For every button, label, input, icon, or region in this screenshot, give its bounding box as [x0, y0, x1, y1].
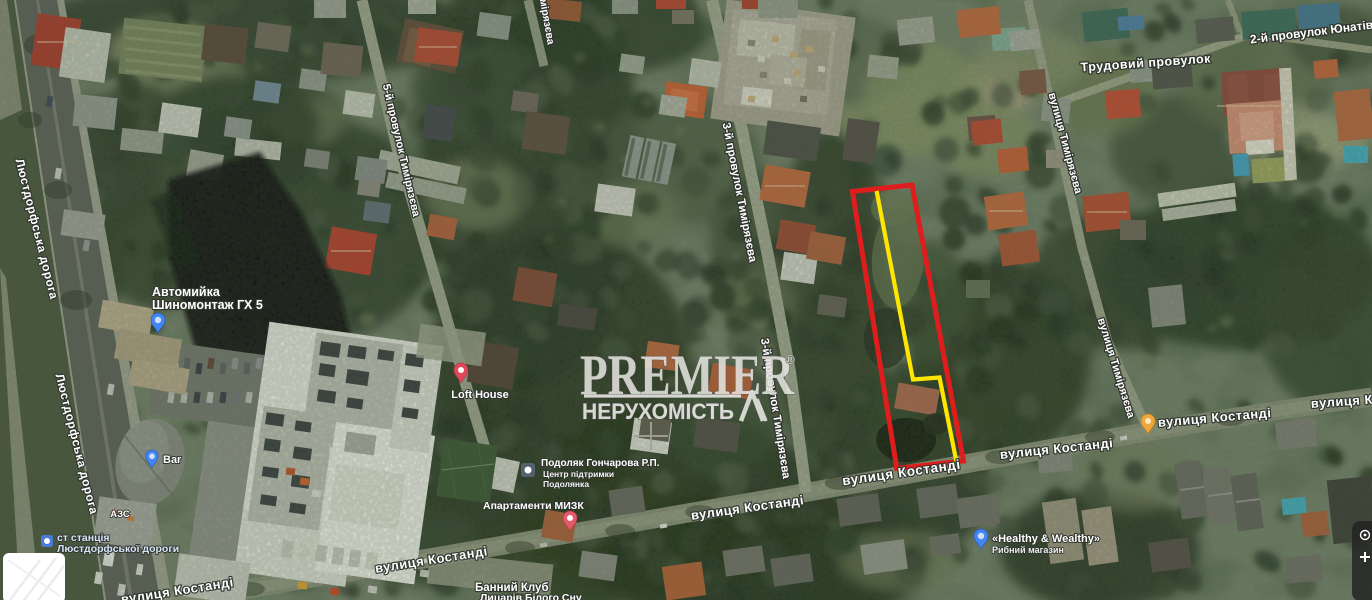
svg-text:Bar: Bar: [163, 454, 182, 466]
svg-text:Люстдорфської дороги: Люстдорфської дороги: [57, 543, 179, 555]
svg-text:Автомийка: Автомийка: [152, 285, 221, 299]
svg-text:Loft House: Loft House: [451, 389, 508, 401]
svg-text:Подоляк Гончарова Р.П.: Подоляк Гончарова Р.П.: [541, 458, 660, 469]
svg-text:®: ®: [785, 352, 795, 367]
svg-text:Рибний магазин: Рибний магазин: [992, 545, 1064, 555]
svg-text:Шиномонтаж ГХ 5: Шиномонтаж ГХ 5: [152, 298, 263, 312]
svg-text:«Healthy & Wealthy»: «Healthy & Wealthy»: [992, 533, 1100, 545]
svg-text:Подолянка: Подолянка: [543, 479, 589, 489]
svg-text:Апартаменти МИЗК: Апартаменти МИЗК: [483, 500, 584, 512]
svg-text:АЗС: АЗС: [110, 509, 130, 520]
svg-text:Центр підтримки: Центр підтримки: [543, 469, 614, 479]
svg-text:Лицарів Білого Сну: Лицарів Білого Сну: [480, 592, 582, 600]
svg-text:НЕРУХОМІСТЬ: НЕРУХОМІСТЬ: [582, 399, 734, 424]
